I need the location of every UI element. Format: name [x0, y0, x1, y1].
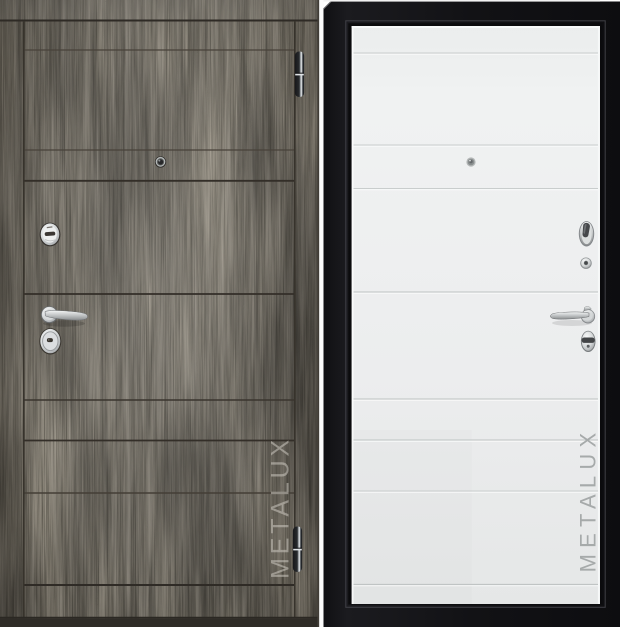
svg-text:METALUX: METALUX [266, 436, 294, 579]
svg-text:METALUX: METALUX [575, 427, 600, 573]
